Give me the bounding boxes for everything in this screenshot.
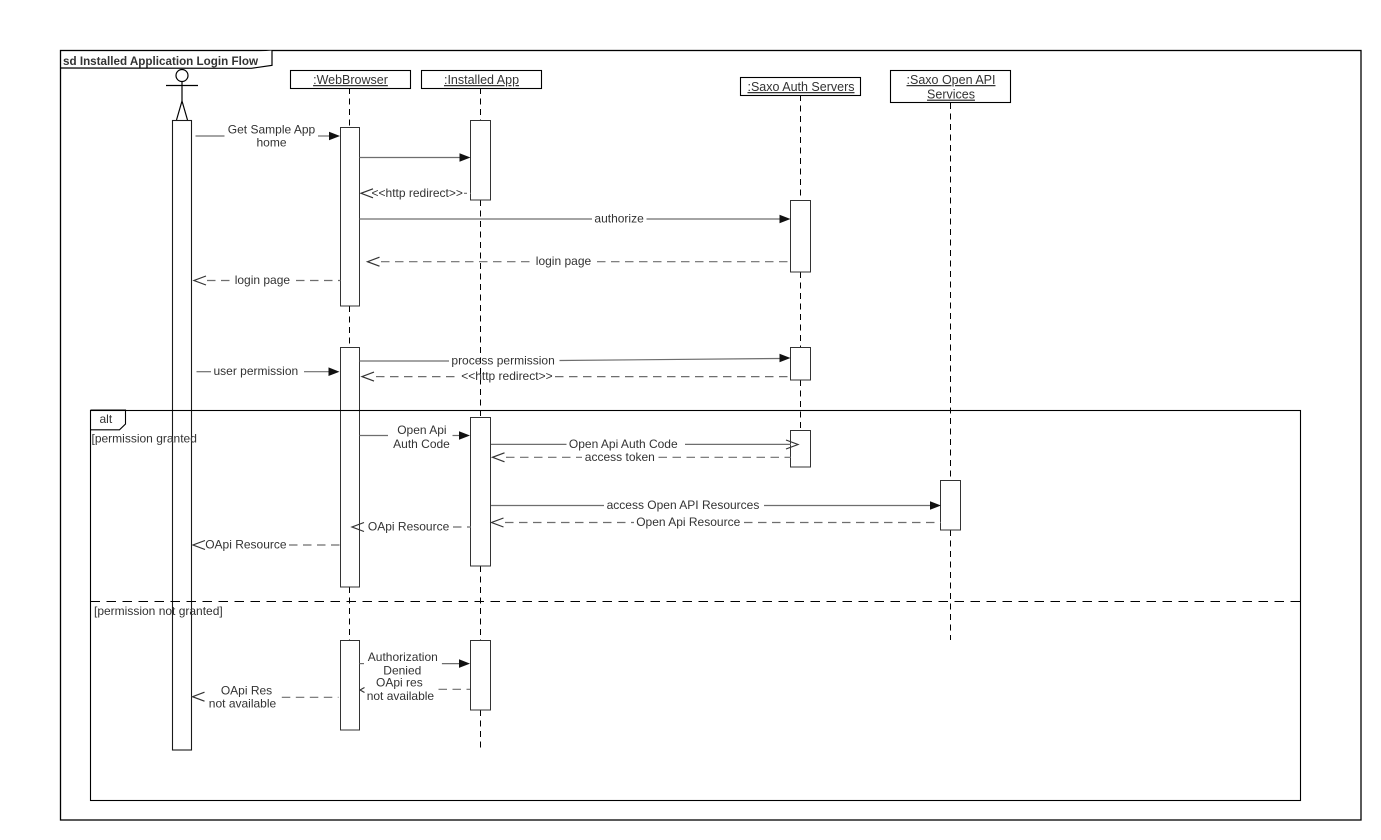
svg-text:home: home bbox=[256, 135, 286, 149]
svg-text:access token: access token bbox=[585, 450, 655, 464]
svg-text:alt: alt bbox=[100, 412, 113, 426]
svg-text:Auth Code: Auth Code bbox=[393, 437, 450, 451]
svg-text:Open Api: Open Api bbox=[397, 423, 446, 437]
svg-text:<<http redirect>>: <<http redirect>> bbox=[372, 186, 463, 200]
svg-text:OApi Resource: OApi Resource bbox=[205, 538, 287, 552]
svg-text:login page: login page bbox=[536, 254, 592, 268]
svg-text:[permission not granted]: [permission not granted] bbox=[94, 604, 223, 618]
svg-text:authorize: authorize bbox=[594, 212, 644, 226]
svg-text:Authorization: Authorization bbox=[368, 650, 438, 664]
svg-text:<<http redirect>>: <<http redirect>> bbox=[461, 369, 552, 383]
svg-text:not available: not available bbox=[209, 696, 277, 710]
svg-text::Saxo Open API: :Saxo Open API bbox=[907, 73, 996, 87]
svg-text:login page: login page bbox=[235, 273, 291, 287]
svg-text::Installed App: :Installed App bbox=[444, 73, 519, 87]
svg-text:access Open API Resources: access Open API Resources bbox=[607, 498, 760, 512]
svg-text:process permission: process permission bbox=[451, 354, 554, 368]
svg-text:[permission granted: [permission granted bbox=[92, 432, 197, 446]
svg-text:not available: not available bbox=[367, 689, 435, 703]
svg-text::Saxo Auth Servers: :Saxo Auth Servers bbox=[747, 80, 854, 94]
svg-text:OApi res: OApi res bbox=[376, 675, 423, 689]
svg-text:Open Api Resource: Open Api Resource bbox=[636, 515, 740, 529]
svg-text:sd Installed Application Login: sd Installed Application Login Flow bbox=[63, 54, 259, 68]
svg-text:OApi Resource: OApi Resource bbox=[368, 520, 450, 534]
svg-text::WebBrowser: :WebBrowser bbox=[313, 73, 388, 87]
svg-text:Services: Services bbox=[927, 88, 975, 102]
svg-text:user permission: user permission bbox=[214, 364, 299, 378]
svg-text:Open Api Auth Code: Open Api Auth Code bbox=[569, 437, 678, 451]
